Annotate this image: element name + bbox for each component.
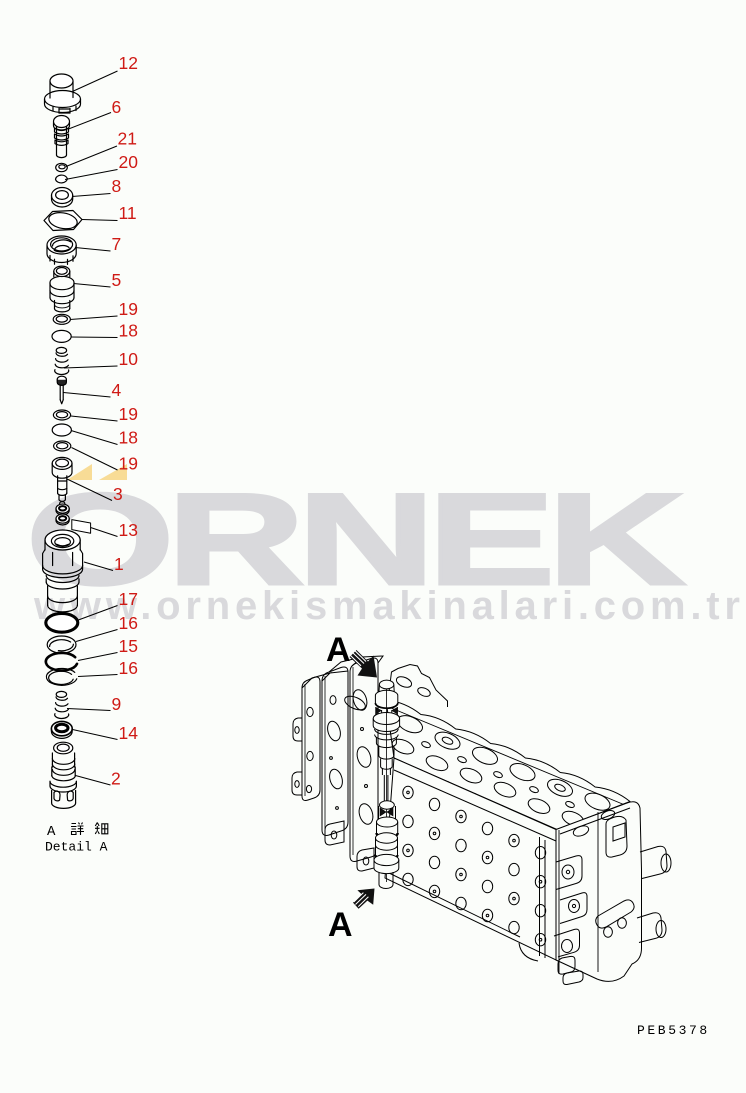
svg-text:8: 8	[112, 176, 122, 196]
svg-text:11: 11	[119, 203, 137, 223]
svg-text:5: 5	[112, 270, 122, 290]
svg-text:21: 21	[118, 129, 137, 149]
svg-text:19: 19	[119, 299, 138, 319]
svg-text:PEB5378: PEB5378	[637, 1023, 710, 1038]
svg-text:A: A	[328, 906, 353, 944]
svg-text:17: 17	[119, 589, 138, 609]
svg-text:14: 14	[119, 723, 139, 743]
svg-text:20: 20	[119, 152, 139, 172]
svg-text:18: 18	[119, 321, 138, 341]
svg-text:1: 1	[114, 554, 124, 574]
svg-text:16: 16	[119, 613, 138, 633]
svg-text:18: 18	[119, 428, 138, 448]
svg-text:A: A	[47, 824, 56, 840]
svg-text:12: 12	[119, 53, 138, 73]
svg-text:3: 3	[113, 484, 123, 504]
svg-text:19: 19	[119, 454, 138, 474]
svg-text:19: 19	[119, 404, 138, 424]
svg-text:13: 13	[119, 520, 138, 540]
svg-text:10: 10	[119, 349, 139, 369]
svg-text:A: A	[326, 631, 351, 669]
svg-text:15: 15	[119, 636, 138, 656]
svg-text:7: 7	[112, 234, 122, 254]
svg-text:16: 16	[119, 658, 138, 678]
svg-text:2: 2	[111, 769, 121, 789]
svg-text:4: 4	[112, 380, 122, 400]
svg-text:Detail A: Detail A	[45, 840, 108, 855]
svg-text:9: 9	[112, 694, 122, 714]
svg-text:6: 6	[112, 97, 122, 117]
